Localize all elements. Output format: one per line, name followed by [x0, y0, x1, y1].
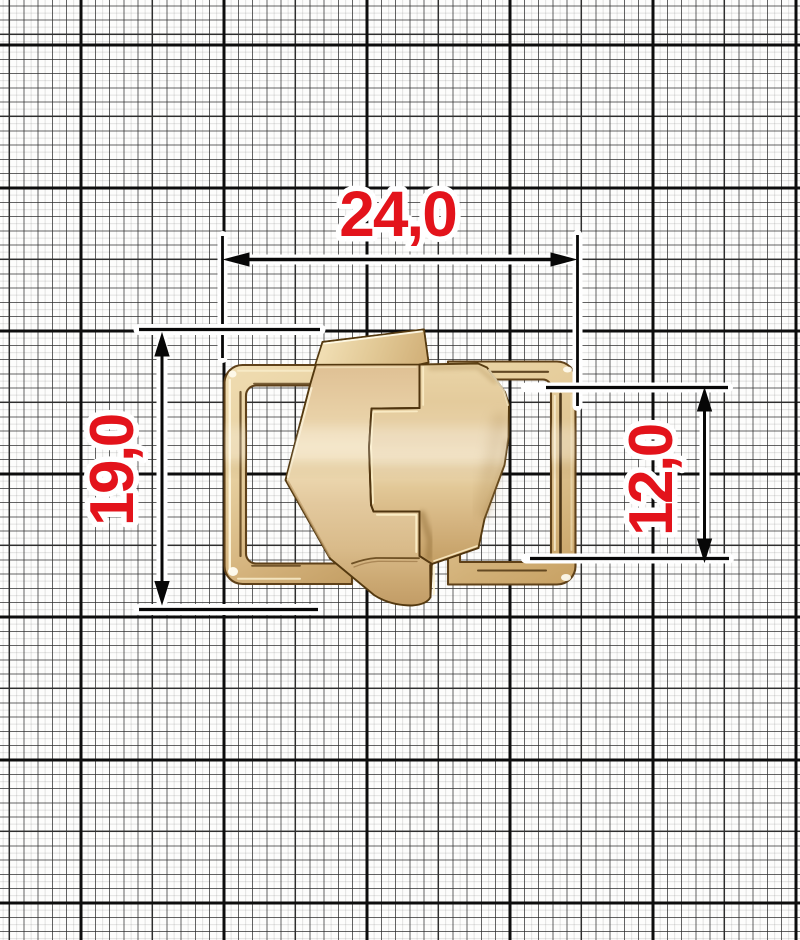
- svg-text:19,0: 19,0: [78, 415, 147, 526]
- svg-text:24,0: 24,0: [339, 178, 456, 250]
- svg-text:12,0: 12,0: [617, 425, 686, 536]
